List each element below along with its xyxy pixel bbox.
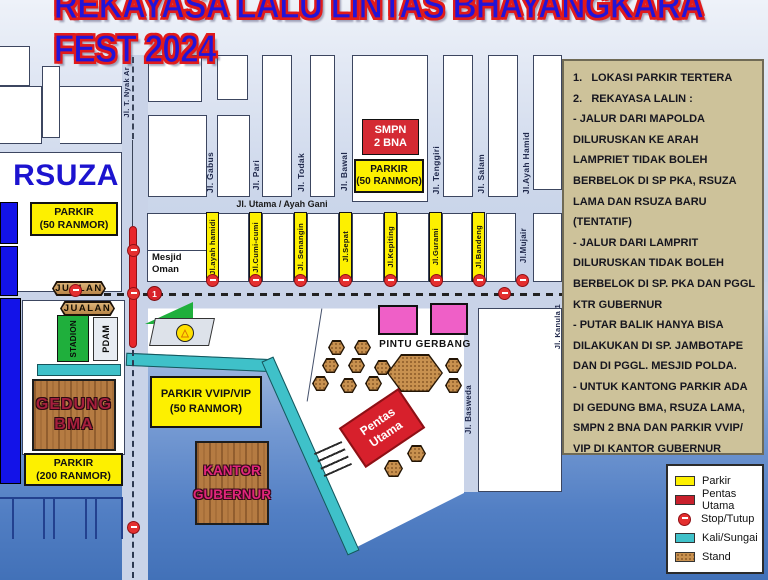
parking-rows-outline bbox=[121, 497, 123, 539]
street-bawal-label: Jl. Bawal bbox=[337, 148, 350, 196]
traffic-map: RSUZA PARKIR (50 RANMOR) SMPN 2 BNA PARK… bbox=[0, 0, 768, 580]
jualan-label: JUALAN bbox=[64, 303, 112, 314]
parkir-strip-kepiting: Jl.Kepiting bbox=[384, 212, 397, 282]
building-block bbox=[42, 66, 60, 138]
street-gurami-label: Jl.Gurami bbox=[431, 228, 440, 265]
kali-left bbox=[37, 364, 121, 376]
building-block bbox=[307, 213, 339, 282]
street-ayah-hamidi-label: Jl.ayah hamidi bbox=[208, 219, 217, 275]
street-senangin-label: Jl. Senangin bbox=[296, 223, 305, 271]
legend-label: Parkir bbox=[702, 475, 731, 487]
pdam-box: PDAM bbox=[93, 317, 118, 361]
page-title: REKAYASA LALU LINTAS BHAYANGKARA FEST 20… bbox=[54, 0, 714, 56]
parkir-strip-senangin: Jl. Senangin bbox=[294, 212, 307, 282]
route-1-badge: 1 bbox=[147, 286, 162, 301]
parkir-strip-cumi: Jl.Cumi-cumi bbox=[249, 212, 262, 282]
parkir-rsuza-box: PARKIR (50 RANMOR) bbox=[30, 202, 118, 236]
street-cumi-label: Jl.Cumi-cumi bbox=[251, 222, 260, 273]
parkir-bma-box: PARKIR (200 RANMOR) bbox=[24, 453, 123, 486]
street-basweda-label: Jl. Basweda bbox=[462, 384, 475, 436]
nyak-solid bbox=[132, 140, 133, 226]
building-block bbox=[218, 213, 249, 282]
kantor-gubernur-box: KANTOR GUBERNUR bbox=[195, 441, 269, 525]
parkir-vvip-box: PARKIR VVIP/VIP (50 RANMOR) bbox=[150, 376, 262, 428]
stop-icon bbox=[498, 287, 511, 300]
note-line: - JALUR DARI MAPOLDA bbox=[573, 109, 758, 130]
stop-icon bbox=[430, 274, 443, 287]
note-line: - PUTAR BALIK HANYA BISA bbox=[573, 315, 758, 336]
kali-swatch-icon bbox=[675, 533, 695, 543]
parking-rows-outline bbox=[53, 497, 55, 539]
note-line: BERBELOK DI SP PKA, RSUZA bbox=[573, 171, 758, 192]
mesjid-oman-label: Mesjid Oman bbox=[152, 252, 206, 275]
note-line: DILURUSKAN KE ARAH bbox=[573, 130, 758, 151]
pentas-swatch-icon bbox=[675, 495, 695, 505]
note-line: SMPN 2 BNA DAN PARKIR VVIP/ bbox=[573, 418, 758, 439]
building-block bbox=[486, 213, 516, 282]
note-line: LAMA DAN RSUZA BARU bbox=[573, 192, 758, 213]
building-block bbox=[397, 213, 429, 282]
pintu-gerbang-label: PINTU GERBANG bbox=[378, 338, 472, 350]
stop-icon bbox=[206, 274, 219, 287]
parking-rows-outline bbox=[85, 497, 87, 539]
note-line: DI GEDUNG BMA, RSUZA LAMA, bbox=[573, 398, 758, 419]
stop-icon bbox=[516, 274, 529, 287]
street-mujair-label: Jl.Mujair bbox=[517, 216, 530, 276]
pdam-label: PDAM bbox=[101, 325, 111, 353]
parkir-strip-gurami: Jl.Gurami bbox=[429, 212, 442, 282]
building-block bbox=[0, 46, 30, 86]
parking-rows-outline bbox=[43, 497, 45, 539]
building-block bbox=[262, 213, 294, 282]
note-line: - UNTUK KANTONG PARKIR ADA bbox=[573, 377, 758, 398]
blue-building bbox=[0, 202, 18, 244]
parkir-strip-bandeng: Jl.Bandeng bbox=[472, 212, 485, 282]
building-block bbox=[217, 115, 250, 197]
note-line: (TENTATIF) bbox=[573, 212, 758, 233]
stadion-box: STADION bbox=[57, 315, 89, 362]
legend-row-pentas: Pentas Utama bbox=[675, 491, 755, 510]
gate-block bbox=[378, 305, 418, 335]
building-block bbox=[442, 213, 472, 282]
note-line: 2. REKAYASA LALIN : bbox=[573, 89, 758, 110]
stop-icon bbox=[249, 274, 262, 287]
legend-row-kali: Kali/Sungai bbox=[675, 529, 755, 548]
note-line: BERBELOK DI SP. PKA DAN PGGL bbox=[573, 274, 758, 295]
note-line: - JALUR DARI LAMPRIT bbox=[573, 233, 758, 254]
jualan-badge: JUALAN bbox=[60, 301, 115, 316]
legend-label: Kali/Sungai bbox=[702, 532, 758, 544]
legend-label: Stop/Tutup bbox=[701, 513, 754, 525]
building-block bbox=[148, 115, 207, 197]
street-kepiting-label: Jl.Kepiting bbox=[386, 226, 395, 268]
notes-panel: 1. LOKASI PARKIR TERTERA2. REKAYASA LALI… bbox=[562, 59, 764, 455]
building-block-right bbox=[478, 308, 562, 492]
note-line: KTR GUBERNUR bbox=[573, 295, 758, 316]
note-line: DILURUSKAN TIDAK BOLEH bbox=[573, 253, 758, 274]
blue-building bbox=[0, 298, 21, 484]
legend-row-stop: Stop/Tutup bbox=[675, 510, 755, 529]
stop-icon bbox=[127, 287, 140, 300]
parkir-strip-ayah-hamidi: Jl.ayah hamidi bbox=[206, 212, 219, 282]
stop-icon bbox=[69, 284, 82, 297]
stop-icon bbox=[294, 274, 307, 287]
street-gabus-label: Jl. Gabus bbox=[203, 148, 216, 196]
gedung-bma-box: GEDUNG BMA bbox=[32, 379, 116, 451]
stadion-label: STADION bbox=[69, 320, 78, 358]
note-line: DAN DI PGGL. MESJID POLDA. bbox=[573, 356, 758, 377]
stop-icon bbox=[473, 274, 486, 287]
note-line: LAMPRIET TIDAK BOLEH bbox=[573, 150, 758, 171]
mesjid-divider bbox=[147, 250, 207, 251]
nyak-dash-bottom bbox=[132, 350, 134, 578]
legend-row-stand: Stand bbox=[675, 547, 755, 566]
parkir-swatch-icon bbox=[675, 476, 695, 486]
stop-icon bbox=[127, 521, 140, 534]
building-block bbox=[488, 55, 518, 197]
building-block bbox=[0, 86, 42, 144]
parking-rows-outline bbox=[0, 497, 123, 499]
stop-icon bbox=[339, 274, 352, 287]
building-block bbox=[310, 55, 335, 197]
street-salam-label: Jl. Salam bbox=[474, 150, 487, 198]
rsuza-label: RSUZA bbox=[14, 156, 118, 196]
stop-icon bbox=[127, 244, 140, 257]
stop-icon bbox=[678, 513, 691, 526]
street-todak-label: Jl. Todak bbox=[294, 148, 307, 196]
building-block bbox=[60, 86, 122, 144]
stop-icon bbox=[384, 274, 397, 287]
legend: Parkir Pentas Utama Stop/Tutup Kali/Sung… bbox=[666, 464, 764, 574]
note-line: VIP DI KANTOR GUBERNUR bbox=[573, 439, 758, 455]
parking-rows-outline bbox=[12, 497, 14, 539]
smpn-box: SMPN 2 BNA bbox=[362, 119, 419, 155]
street-sepat-label: Jl.Sepat bbox=[341, 231, 350, 262]
building-block bbox=[533, 213, 562, 282]
building-block bbox=[352, 213, 384, 282]
blue-building bbox=[0, 246, 18, 296]
legend-label: Stand bbox=[702, 551, 731, 563]
street-utama-label: Jl. Utama / Ayah Gani bbox=[226, 198, 338, 210]
street-bandeng-label: Jl.Bandeng bbox=[474, 225, 483, 268]
street-tenggiri-label: Jl. Tenggiri bbox=[429, 142, 442, 198]
building-block bbox=[533, 55, 562, 190]
street-ayah-hamid-label: Jl.Ayah Hamid bbox=[519, 128, 532, 198]
gate-block bbox=[430, 303, 468, 335]
street-pari-label: Jl. Pari bbox=[249, 154, 262, 196]
building-block bbox=[443, 55, 473, 197]
legend-label: Pentas Utama bbox=[702, 488, 755, 512]
note-line: DILAKUKAN DI SP. JAMBOTAPE bbox=[573, 336, 758, 357]
parkir-strip-sepat: Jl.Sepat bbox=[339, 212, 352, 282]
parking-rows-outline bbox=[95, 497, 97, 539]
warning-sign-icon: △ bbox=[176, 324, 194, 342]
building-block bbox=[262, 55, 292, 197]
stand-swatch-icon bbox=[675, 552, 695, 562]
parkir-smpn-box: PARKIR (50 RANMOR) bbox=[354, 159, 424, 193]
